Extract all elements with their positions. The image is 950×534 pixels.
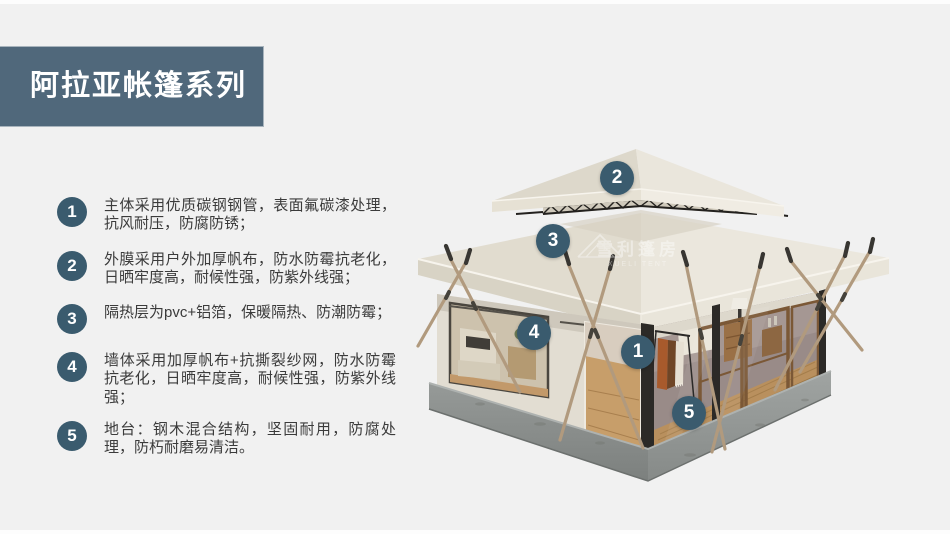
tent-illustration [0,0,950,534]
tent-callout-2: 2 [600,161,634,195]
tent-callout-3: 3 [536,224,570,258]
tent-callout-5: 5 [672,396,706,430]
tent-render: 雪利篷房 XUELI TENT 1 2 3 4 5 [0,0,950,534]
tent-callout-1: 1 [621,335,655,369]
slide: 阿拉亚帐篷系列 1 主体采用优质碳钢钢管，表面氟碳漆处理，抗风耐压，防腐防锈； … [0,0,950,534]
tent-callout-4: 4 [517,316,551,350]
